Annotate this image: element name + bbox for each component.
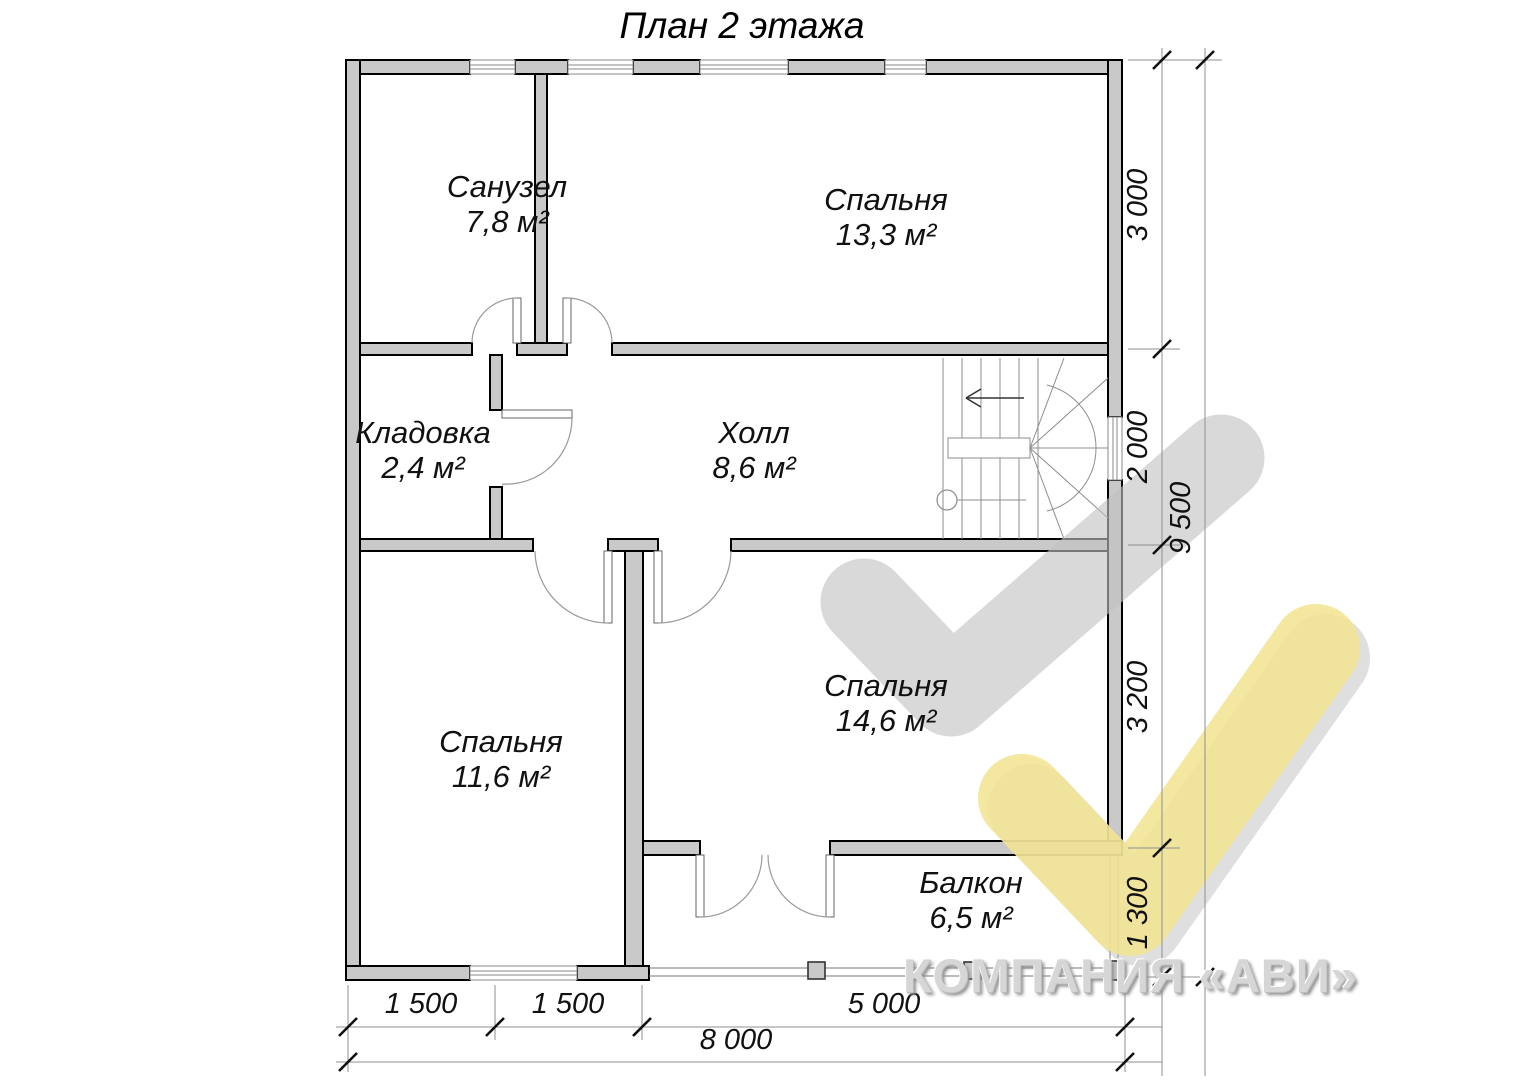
stairs (937, 358, 1108, 539)
floor-plan-page: План 2 этажа Санузел 7,8 м² Спальня 13,3… (0, 0, 1528, 1080)
dim-right-1300: 1 300 (1122, 877, 1154, 950)
room-area-balcony: 6,5 м² (929, 900, 1014, 935)
wall-segment (608, 539, 658, 551)
wall-segment (926, 60, 1122, 74)
room-label-sanuzel: Санузел (447, 169, 567, 204)
room-label-bedroom-left: Спальня (439, 724, 563, 759)
room-area-kladovka: 2,4 м² (380, 450, 466, 485)
dim-right-total-9500: 9 500 (1165, 482, 1197, 555)
wall-segment (490, 487, 502, 539)
room-area-bedroom-top: 13,3 м² (836, 217, 938, 252)
company-watermark: КОМПАНИЯ «АВИ» (903, 948, 1373, 1003)
dim-right-2000: 2 000 (1122, 411, 1154, 485)
wall-segment (633, 60, 700, 74)
window (470, 966, 577, 980)
stair-landing (948, 438, 1030, 458)
balcony-french-doors (696, 855, 834, 917)
wall-segment (612, 343, 1108, 355)
dim-bottom-1500a: 1 500 (385, 988, 458, 1020)
wall-segment (346, 966, 470, 980)
wall-segment (490, 355, 502, 410)
dim-bottom-total-8000: 8 000 (700, 1024, 773, 1056)
wall-segment (788, 60, 885, 74)
wall-segment (360, 343, 472, 355)
room-area-bedroom-right: 14,6 м² (836, 703, 938, 738)
check-watermark-yellow (1022, 648, 1326, 922)
window (1108, 417, 1122, 480)
wall-segment (1108, 60, 1122, 417)
dim-right-3000: 3 000 (1122, 169, 1154, 242)
window (470, 60, 515, 74)
wall-segment (517, 343, 567, 355)
room-label-hall: Холл (717, 415, 790, 450)
wall-segment (346, 60, 360, 980)
wall-segment (577, 966, 649, 980)
door-bedroom-left (535, 551, 612, 623)
wall-segment (360, 539, 533, 551)
room-label-bedroom-right: Спальня (824, 668, 948, 703)
dim-right-3200: 3 200 (1122, 661, 1154, 734)
room-area-bedroom-left: 11,6 м² (452, 759, 552, 794)
wall-segment (625, 551, 643, 966)
railing-post (808, 962, 825, 979)
floor-plan-drawing: План 2 этажа Санузел 7,8 м² Спальня 13,3… (0, 0, 1528, 1080)
door-kladovka (502, 410, 572, 484)
room-label-balcony: Балкон (919, 865, 1023, 900)
room-area-sanuzel: 7,8 м² (465, 204, 550, 239)
door-bedroom-right (654, 551, 731, 623)
door-bedroom-top (563, 298, 612, 343)
wall-segment (515, 60, 568, 74)
window (700, 60, 788, 74)
doors (472, 298, 834, 917)
dim-bottom-1500b: 1 500 (532, 988, 605, 1020)
wall-segment (346, 60, 470, 74)
room-area-hall: 8,6 м² (712, 450, 797, 485)
room-label-bedroom-top: Спальня (824, 182, 948, 217)
stair-direction-arrow (966, 389, 1024, 407)
room-label-kladovka: Кладовка (355, 415, 490, 450)
door-sanuzel (472, 298, 521, 343)
window (885, 60, 926, 74)
window (568, 60, 633, 74)
stair-start-marker (937, 490, 957, 510)
page-title: План 2 этажа (620, 5, 865, 46)
